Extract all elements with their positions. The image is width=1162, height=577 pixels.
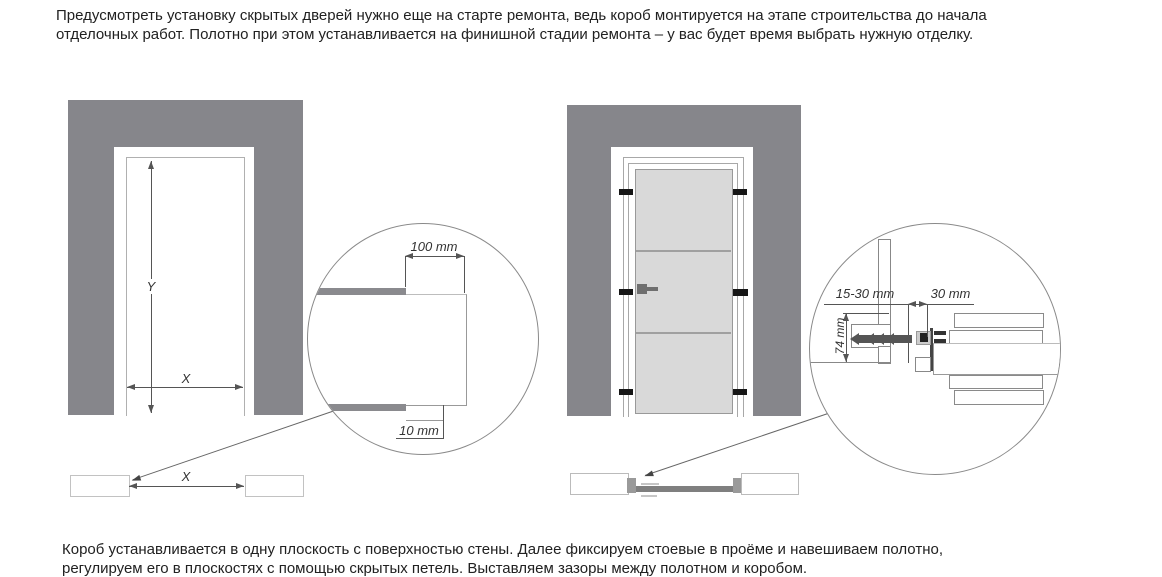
anchor-dowel-barb [886,333,894,345]
extension-line [405,256,406,287]
leaf-divider-top [636,250,731,252]
intro-paragraph-line-1: Предусмотреть установку скрытых дверей н… [56,6,987,25]
anchor-dowel-tip [850,333,859,345]
detail-callout-circle-left: 100 mm 10 mm [307,223,539,455]
width-dimension-label: X [178,371,194,386]
hinge-plate [949,330,1043,344]
frame-depth-leader [927,304,974,305]
mounting-clip [619,189,633,195]
plan-frame-jamb-right [733,478,741,493]
footer-paragraph-line-2: регулируем его в плоскостях с помощью ск… [62,559,807,577]
mounting-clip [619,389,633,395]
detail-callout-circle-right: 15-30 mm 30 mm 74 mm [809,223,1061,475]
plan-width-dimension-label: X [178,469,194,484]
mounting-clip [733,189,747,195]
plan-jamb-right [245,475,304,497]
extension-line [464,256,465,293]
plan-door-leaf [636,486,733,492]
anchor-dowel-barb [866,333,874,345]
frame-clip-prong [934,331,946,335]
plan-hinge-mark [641,483,659,485]
hinge-plate [949,375,1043,389]
reveal-gap-label: 10 mm [396,423,442,438]
footer-paragraph-line-1: Короб устанавливается в одну плоскость с… [62,540,943,559]
plan-frame-jamb-left [627,478,636,493]
extension-line [927,304,928,337]
mounting-clip [733,289,748,296]
frame-offset-dimension [405,256,464,257]
door-handle [637,284,647,294]
wall-face-line [810,362,890,363]
frame-offset-label: 100 mm [396,239,472,254]
frame-depth-label: 30 mm [927,286,974,301]
plan-width-dimension [129,486,244,487]
height-dimension-label: Y [143,279,159,294]
reveal-gap-leader-vertical [443,405,444,439]
frame-bottom-bracket [915,357,931,372]
leader-arrow-right [645,413,828,476]
width-dimension [127,387,243,388]
anchor-dowel-barb [876,333,884,345]
extension-line [843,313,889,314]
plan-wall-right [741,473,799,495]
frame-section [406,294,467,406]
hinge-plate [954,313,1044,328]
wall-edge-bar-top [307,288,406,295]
reveal-step [406,411,444,421]
mounting-clip [733,389,747,395]
extension-line [908,304,909,363]
finish-gap-leader [824,304,908,305]
instruction-page: Предусмотреть установку скрытых дверей н… [0,0,1162,577]
wall-edge-bar-bottom [328,404,406,411]
finish-gap-label: 15-30 mm [822,286,908,301]
door-leaf-section [933,343,1061,375]
intro-paragraph-line-2: отделочных работ. Полотно при этом устан… [56,25,973,44]
finish-gap-dimension [908,304,927,305]
plan-jamb-left [70,475,130,497]
door-leaf [635,169,733,414]
plan-hinge-mark [641,495,657,497]
plan-wall-left [570,473,629,495]
anchor-height-label: 74 mm [833,313,847,359]
leaf-divider-bottom [636,332,731,334]
reveal-gap-leader-horizontal [396,438,444,439]
mounting-clip [619,289,633,295]
hinge-plate [954,390,1044,405]
leader-arrow-left [132,410,335,480]
door-handle-lever [647,287,658,291]
